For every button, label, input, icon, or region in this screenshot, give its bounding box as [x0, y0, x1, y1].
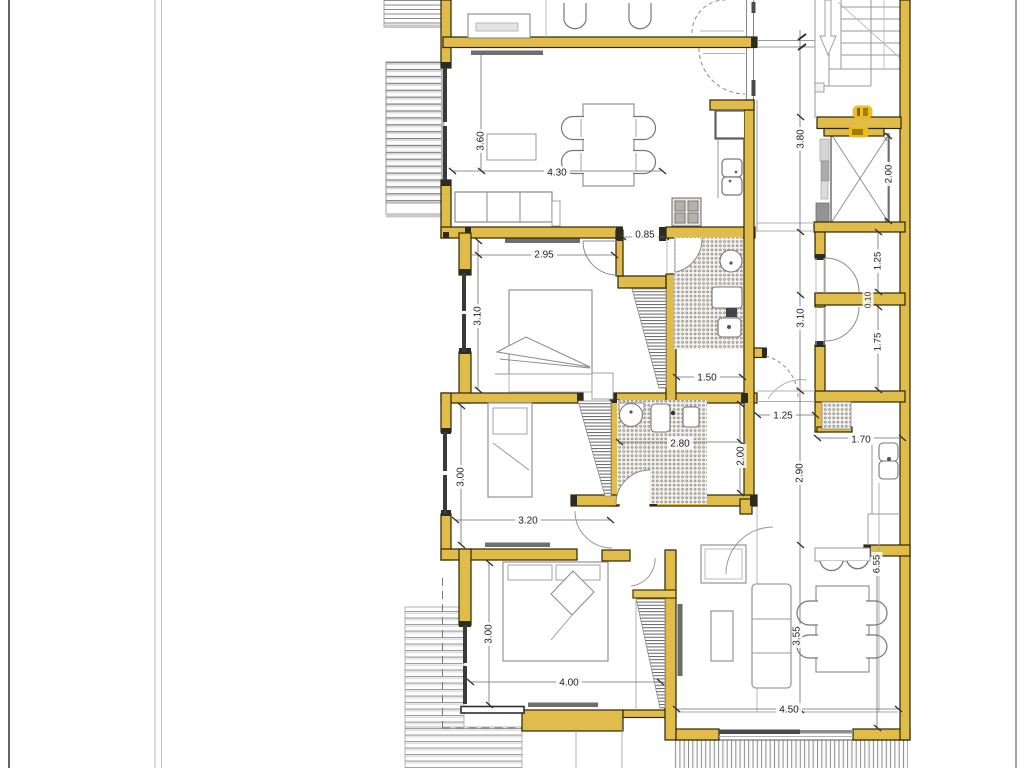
svg-text:0.85: 0.85 — [635, 230, 655, 241]
svg-text:x: x — [884, 136, 888, 143]
svg-text:4.30: 4.30 — [547, 168, 567, 179]
svg-text:3.60: 3.60 — [476, 131, 487, 151]
svg-text:4.50: 4.50 — [779, 705, 799, 716]
svg-text:3.80: 3.80 — [796, 129, 807, 149]
svg-text:1.70: 1.70 — [851, 435, 871, 446]
svg-text:0.10: 0.10 — [862, 291, 872, 308]
svg-text:2.00: 2.00 — [884, 165, 895, 184]
svg-text:2.95: 2.95 — [534, 250, 554, 261]
svg-text:2.00: 2.00 — [736, 446, 747, 466]
svg-text:3.10: 3.10 — [796, 308, 807, 328]
svg-text:3.10: 3.10 — [473, 306, 484, 326]
svg-text:1.25: 1.25 — [873, 252, 884, 271]
svg-text:3.00: 3.00 — [484, 624, 495, 644]
svg-text:3.20: 3.20 — [518, 516, 538, 527]
svg-text:2.90: 2.90 — [795, 463, 806, 483]
svg-text:4.00: 4.00 — [559, 678, 579, 689]
svg-text:6.55: 6.55 — [872, 555, 883, 574]
svg-text:3.00: 3.00 — [456, 467, 467, 487]
svg-text:3.55: 3.55 — [792, 626, 803, 646]
svg-text:1.50: 1.50 — [697, 373, 717, 384]
svg-text:2.80: 2.80 — [670, 439, 690, 450]
svg-text:1.25: 1.25 — [773, 411, 793, 422]
svg-text:1.75: 1.75 — [873, 333, 884, 352]
